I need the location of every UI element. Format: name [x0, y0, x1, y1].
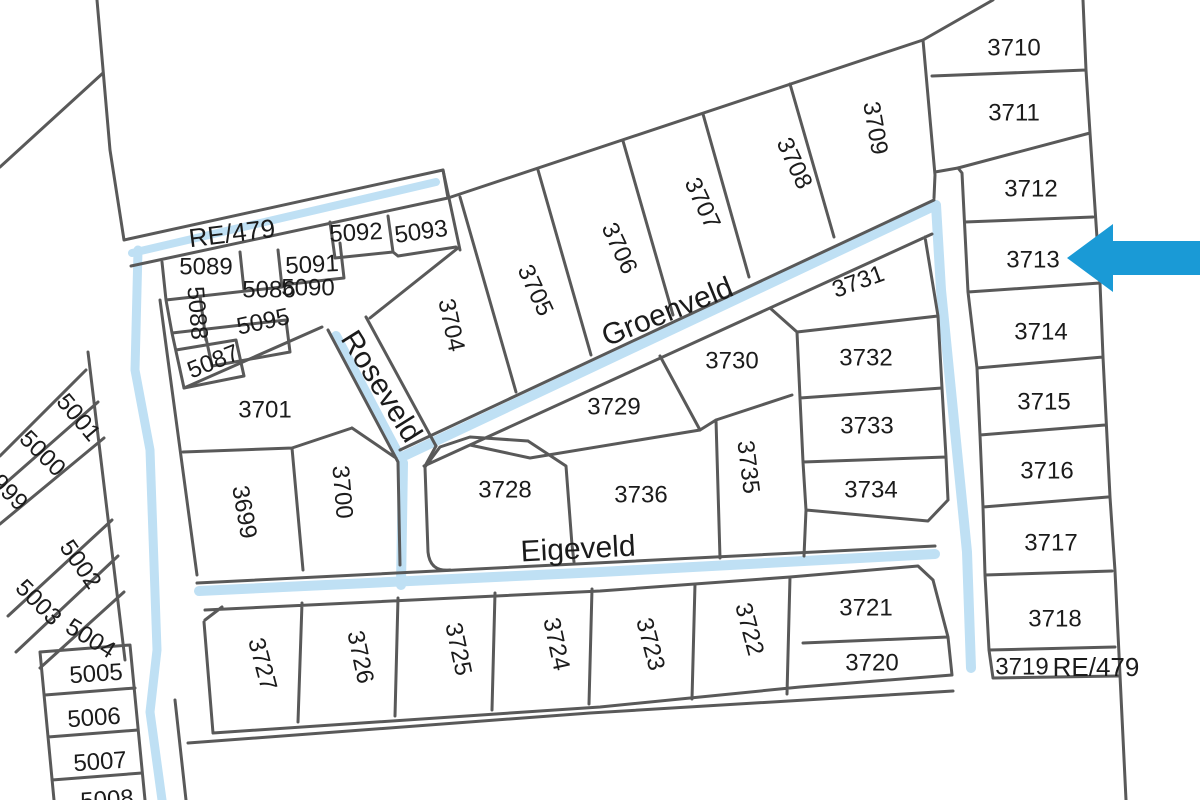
map-canvas: 3710371137123713371437153716371737183719… [0, 0, 1200, 800]
parcel-label-3725: 3725 [439, 620, 477, 678]
parcel-label-3722: 3722 [729, 600, 769, 659]
water-left-ditch [135, 250, 162, 800]
highlight-arrow-3713 [1067, 224, 1200, 292]
parcel-label-5095: 5095 [234, 303, 292, 341]
parcel-label-3733: 3733 [840, 412, 893, 439]
parcel-label-3712: 3712 [1004, 175, 1057, 202]
parcel-label-3728: 3728 [478, 476, 531, 503]
parcel-label-3735: 3735 [731, 439, 764, 495]
parcel-label-3731: 3731 [829, 260, 888, 304]
parcel-label-3704: 3704 [432, 296, 470, 354]
parcel-label-999: 999 [0, 469, 33, 516]
annotation-re479-left: RE/479 [187, 213, 277, 253]
parcel-label-5006: 5006 [66, 703, 121, 734]
parcel-labels: 3710371137123713371437153716371737183719… [0, 34, 1082, 800]
parcel-label-3701: 3701 [238, 396, 291, 423]
parcel-label-3726: 3726 [341, 628, 379, 686]
parcel-label-3713: 3713 [1006, 246, 1059, 273]
parcel-label-3732: 3732 [839, 344, 892, 371]
parcel-label-3718: 3718 [1028, 605, 1081, 632]
parcel-label-5090: 5090 [281, 274, 334, 301]
parcel-label-5092: 5092 [329, 218, 384, 248]
parcel-label-3721: 3721 [839, 594, 892, 621]
parcel-label-5088: 5088 [181, 285, 213, 341]
parcel-label-5007: 5007 [72, 747, 127, 778]
street-label-eigeveld: Eigeveld [520, 530, 637, 569]
parcel-label-3727: 3727 [242, 635, 282, 694]
parcel-label-3716: 3716 [1020, 457, 1073, 484]
parcel-label-3705: 3705 [512, 260, 559, 320]
parcel-label-3700: 3700 [326, 464, 358, 520]
parcel-label-5089: 5089 [179, 253, 232, 280]
parcel-label-3709: 3709 [857, 100, 893, 157]
parcel-label-3711: 3711 [988, 99, 1040, 126]
boundary-lines [0, 0, 1126, 800]
parcel-label-3734: 3734 [844, 476, 897, 503]
parcel-label-3706: 3706 [596, 218, 643, 278]
parcel-label-5003: 5003 [10, 574, 67, 631]
parcel-label-3730: 3730 [705, 347, 758, 374]
parcel-label-5093: 5093 [393, 215, 450, 249]
parcel-label-3710: 3710 [987, 34, 1040, 61]
parcel-label-3715: 3715 [1017, 388, 1070, 415]
parcel-label-3714: 3714 [1014, 318, 1067, 345]
parcel-label-3729: 3729 [587, 393, 640, 420]
parcel-label-5008: 5008 [79, 785, 134, 800]
parcel-label-5005: 5005 [68, 659, 123, 690]
cadastral-map: 3710371137123713371437153716371737183719… [0, 0, 1200, 800]
parcel-label-3717: 3717 [1024, 529, 1077, 556]
parcel-label-3708: 3708 [771, 133, 818, 193]
parcel-label-3707: 3707 [679, 173, 726, 233]
parcel-label-3699: 3699 [226, 484, 262, 541]
parcel-label-3719: 3719 [995, 653, 1048, 680]
parcel-label-3724: 3724 [537, 615, 575, 673]
parcel-label-3723: 3723 [630, 615, 670, 674]
annotation-re479-right: RE/479 [1053, 652, 1140, 682]
parcel-label-3736: 3736 [614, 481, 667, 508]
parcel-label-3720: 3720 [845, 649, 898, 676]
